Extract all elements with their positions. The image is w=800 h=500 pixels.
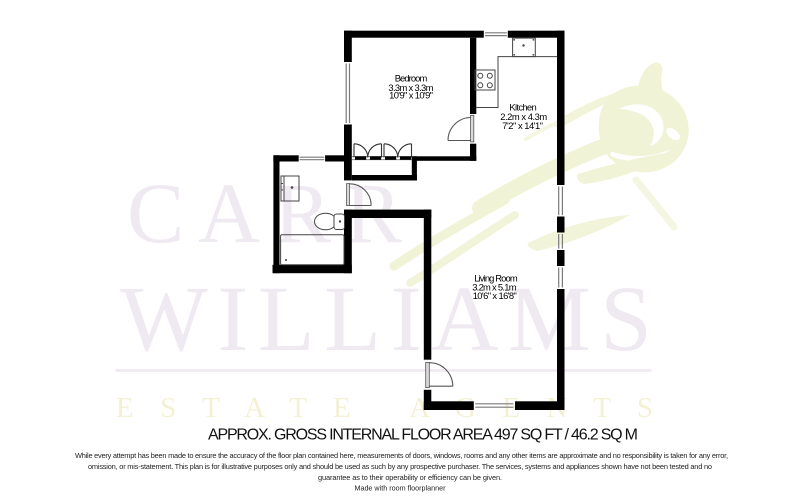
svg-text:10'6" x 16'8": 10'6" x 16'8" bbox=[473, 290, 517, 301]
svg-text:7'2" x 14'1": 7'2" x 14'1" bbox=[502, 120, 543, 131]
svg-text:Made with room floorplanner: Made with room floorplanner bbox=[354, 484, 446, 493]
svg-text:APPROX. GROSS INTERNAL FLOOR A: APPROX. GROSS INTERNAL FLOOR AREA 497 SQ… bbox=[208, 427, 638, 444]
svg-text:While every attempt has been m: While every attempt has been made to ens… bbox=[75, 451, 728, 460]
svg-text:10'9" x 10'9": 10'9" x 10'9" bbox=[389, 90, 433, 101]
svg-text:guarantee as to their operabil: guarantee as to their operability or eff… bbox=[318, 473, 502, 482]
svg-text:omission, or mis-statement. T: omission, or mis-statement. This plan is… bbox=[88, 462, 712, 471]
